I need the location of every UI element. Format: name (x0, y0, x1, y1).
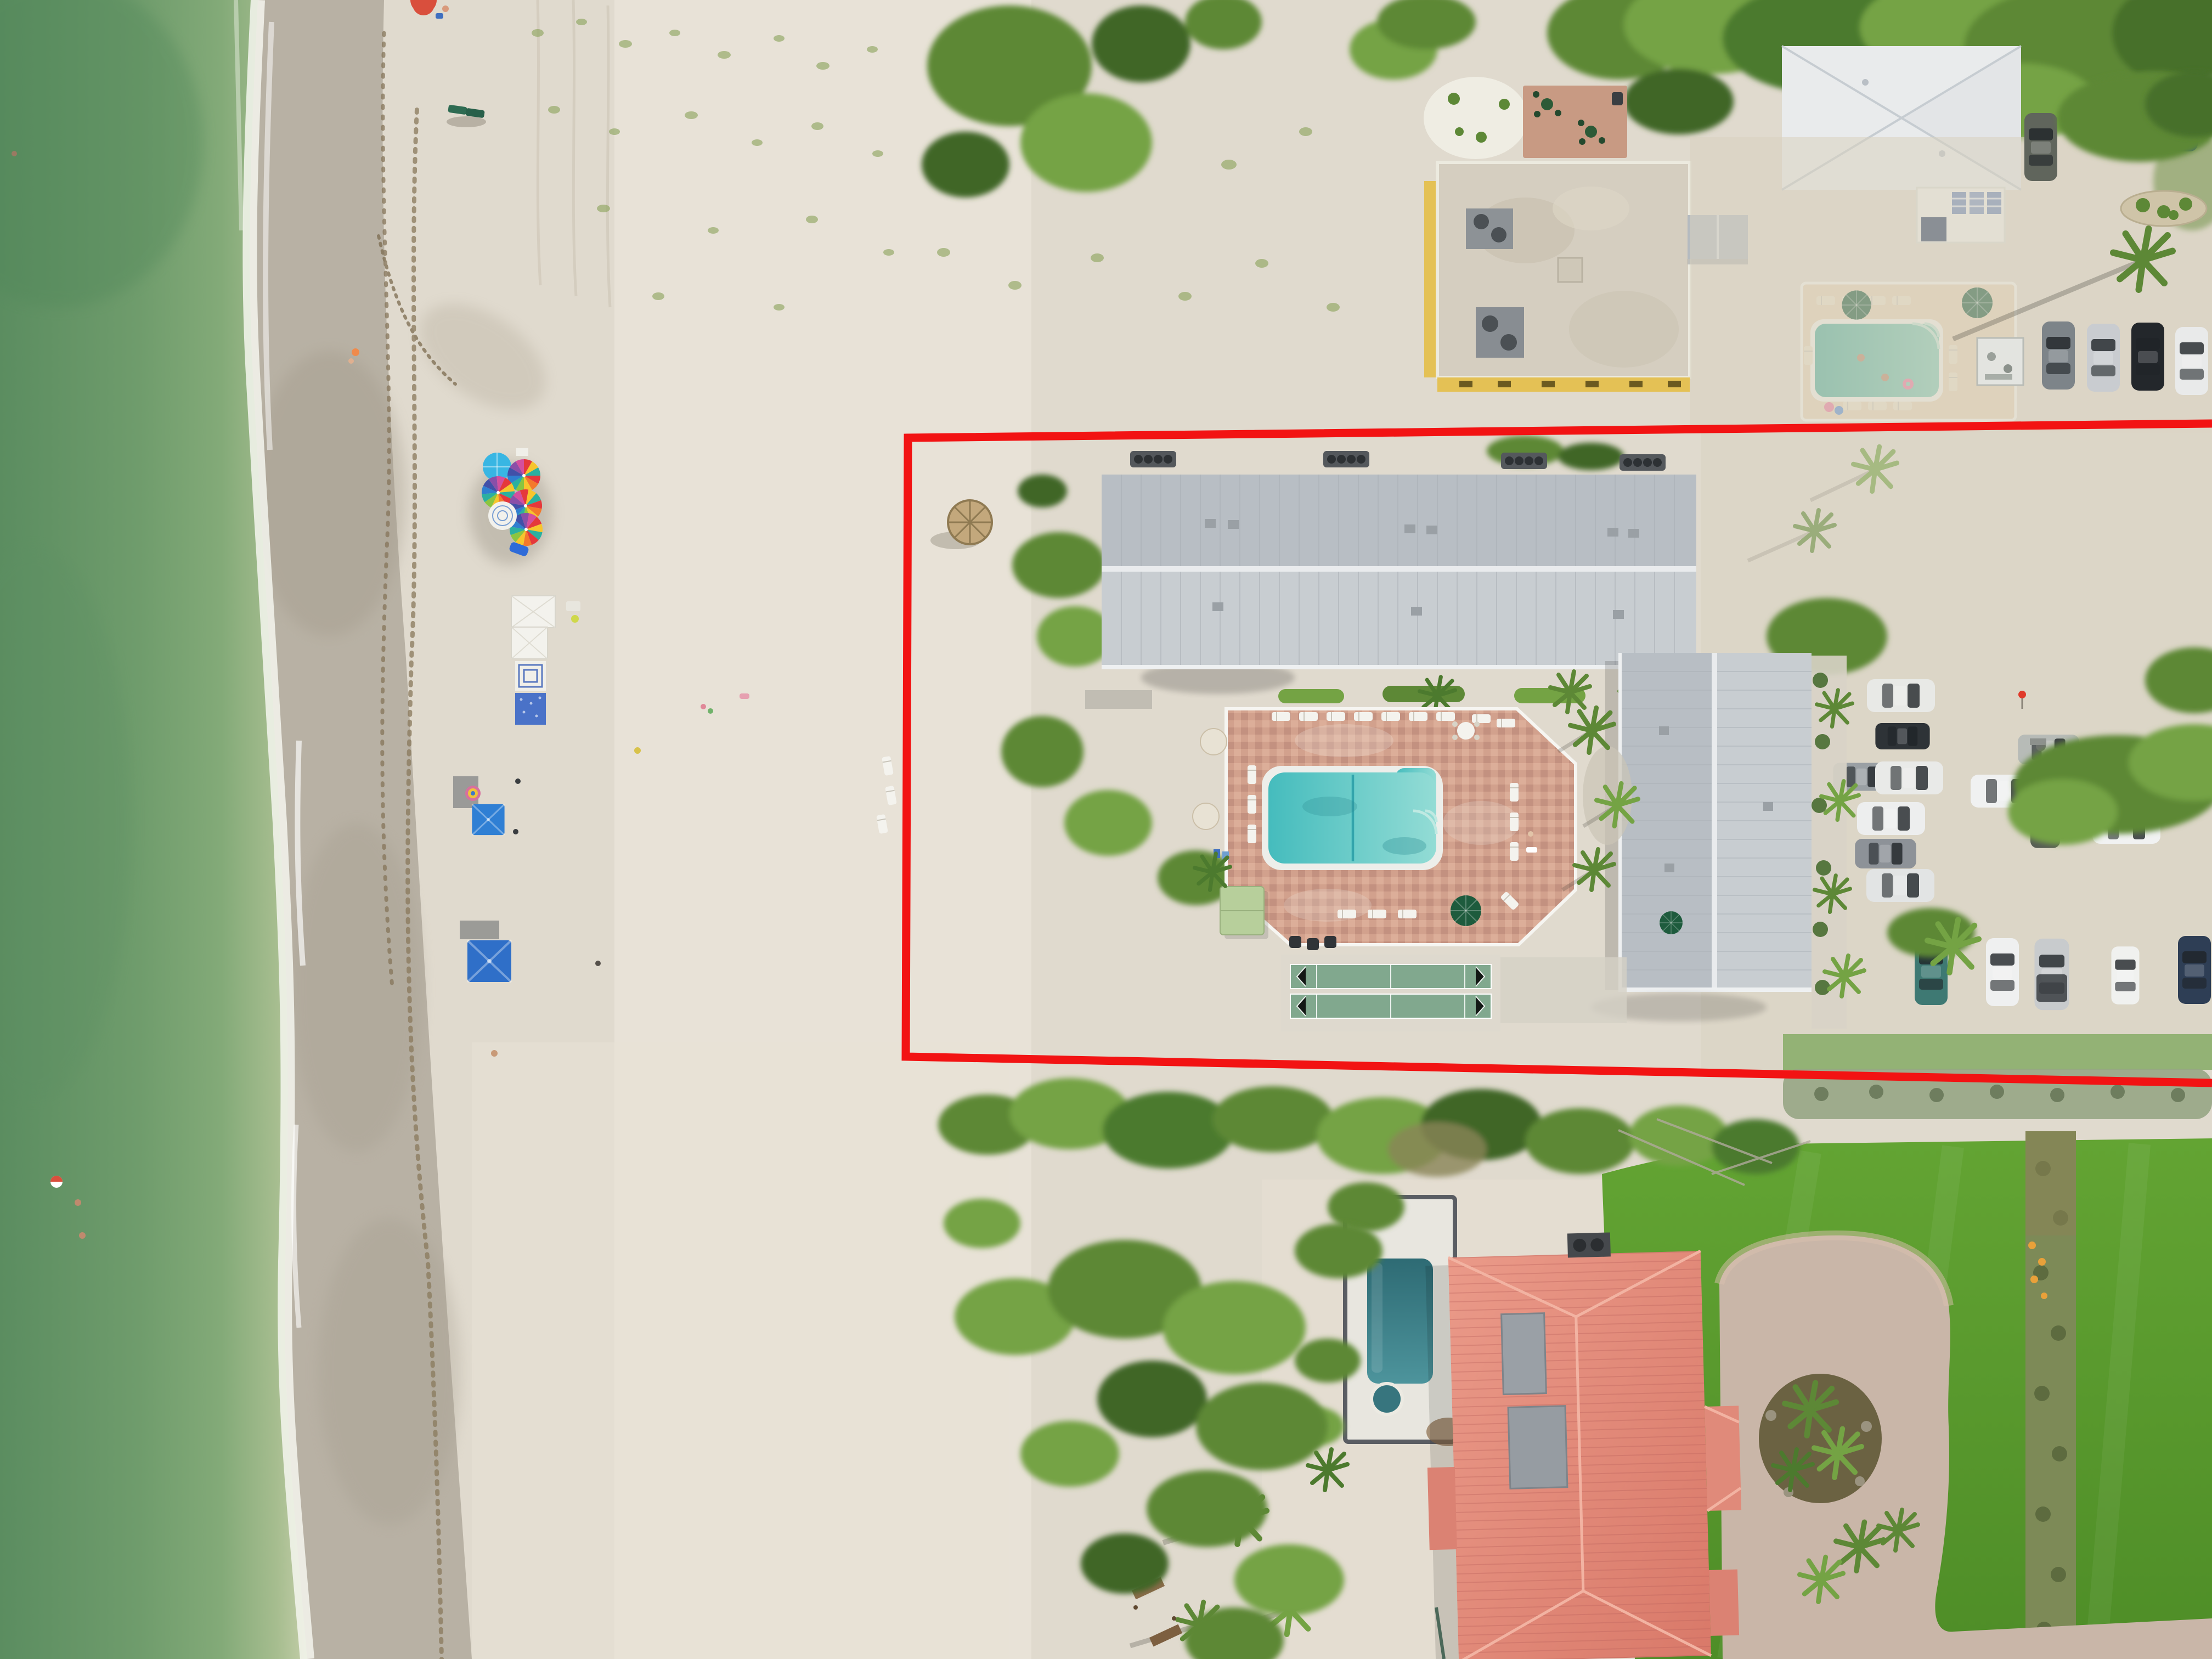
aerial-photo-canvas (0, 0, 2212, 1659)
car-darkblue (2178, 936, 2211, 1004)
car-white-compact (2112, 946, 2140, 1004)
car-white-van (1875, 761, 1943, 794)
car-dark-convertible (1875, 723, 1929, 749)
car-suv-gray (2024, 113, 2057, 181)
car-white (2175, 327, 2208, 395)
green-umbrella (1451, 895, 1481, 926)
yellow-building (1424, 162, 1690, 392)
roof-skylight-panel (1502, 1313, 1547, 1395)
car-white-suv (1857, 802, 1925, 835)
spa (1372, 1384, 1402, 1414)
green-umbrella (1660, 911, 1683, 934)
red-flag (2018, 691, 2026, 698)
car-gray-sedan (1855, 839, 1916, 868)
building-2-clubhouse (1591, 653, 1864, 1029)
rooftop-ac-unit (1476, 307, 1524, 358)
cream-umbrella (1193, 803, 1219, 830)
striped-square-umbrella (515, 661, 546, 691)
car-silver-pickup (2035, 939, 2069, 1010)
patio-table (1457, 722, 1475, 740)
rooftop-ac-unit (1466, 208, 1513, 249)
brick-patio (1523, 86, 1627, 158)
car-white-suv (1986, 938, 2019, 1006)
storage-shed (1977, 338, 2023, 385)
gravel-garden (1424, 77, 1528, 159)
roof-skylight-panel (1508, 1406, 1567, 1489)
car-white-wagon (1866, 869, 1934, 902)
grass-strip (1783, 1034, 2212, 1070)
car-suv (2042, 321, 2075, 390)
car-black-suv (2131, 323, 2164, 391)
coral-tile-roof-house (1421, 1229, 1745, 1659)
cream-umbrella (1200, 729, 1227, 755)
car-white-pickup (1867, 679, 1935, 712)
boardwalk (1085, 690, 1152, 709)
car-silver (2087, 324, 2120, 392)
person-beach-1 (571, 615, 579, 623)
